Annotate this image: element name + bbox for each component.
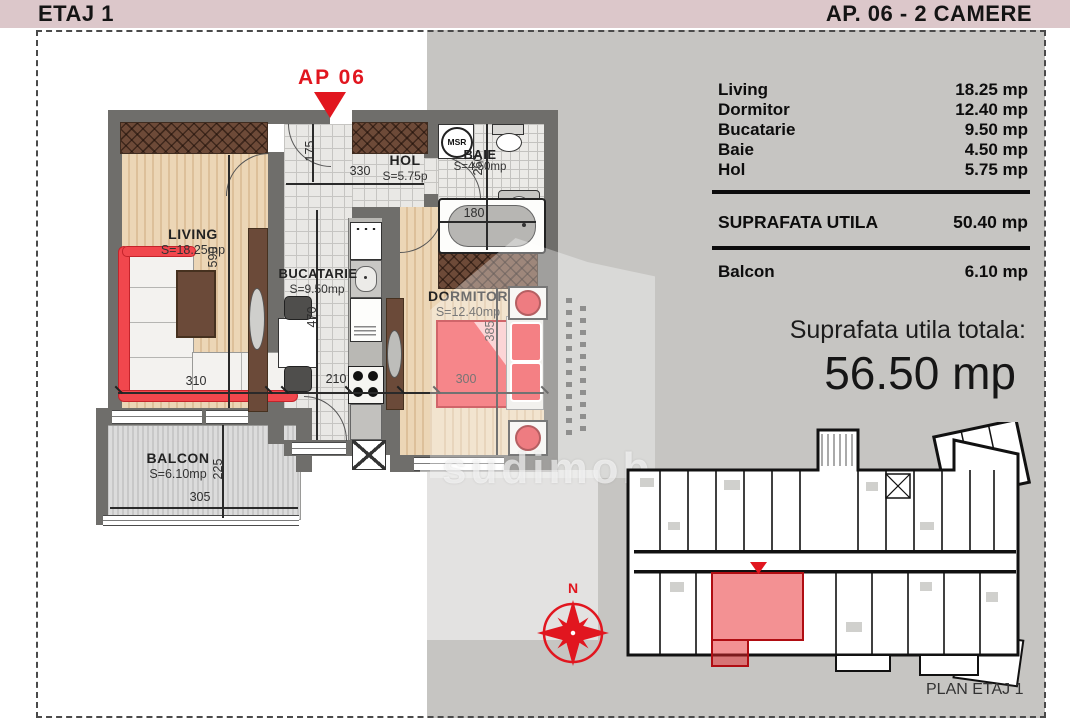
row-value: 18.25 mp [955, 80, 1028, 100]
total-label: SUPRAFATA UTILA [718, 212, 878, 233]
row-label: Living [718, 80, 768, 100]
wall [352, 207, 382, 218]
dim-living-width: 310 [176, 374, 216, 388]
total-area-value: 56.50 mp [700, 346, 1016, 400]
balcony-label: BALCON [140, 450, 216, 466]
row-label: Bucatarie [718, 120, 795, 140]
dim-kitchen-height: 470 [305, 299, 319, 335]
row-label: Hol [718, 160, 745, 180]
row-value: 5.75 mp [965, 160, 1028, 180]
dimension-line [440, 221, 536, 223]
dimension-line [118, 392, 544, 394]
tv-screen [249, 288, 265, 350]
compass-rose-icon [533, 596, 613, 670]
overview-caption: PLAN ETAJ 1 [926, 681, 1032, 699]
apartment-marker-arrow-icon [314, 92, 346, 118]
floor-title: ETAJ 1 [38, 1, 114, 27]
structural-column [352, 440, 386, 470]
kitchen-window [292, 442, 346, 455]
kitchen-label: BUCATARIE [274, 266, 362, 281]
concrete-wall [438, 250, 538, 289]
living-label: LIVING [158, 226, 228, 242]
row-value: 9.50 mp [965, 120, 1028, 140]
chair [284, 366, 312, 392]
balcony-row: Balcon 6.10 mp [712, 262, 1030, 282]
total-value: 50.40 mp [953, 212, 1028, 233]
sofa-frame [118, 246, 130, 400]
apartment-title: AP. 06 - 2 CAMERE [640, 1, 1032, 27]
balcony-label: Balcon [718, 262, 775, 282]
bed-mattress [436, 320, 510, 408]
wardrobe-mirror [387, 330, 402, 378]
bedroom-window [414, 457, 504, 471]
bathtub [438, 198, 546, 254]
compass-north-label: N [533, 580, 613, 596]
table-divider [712, 190, 1030, 194]
total-row: SUPRAFATA UTILA 50.40 mp [712, 212, 1030, 232]
table-row: Hol 5.75 mp [712, 160, 1030, 180]
bedroom-area: S=12.40mp [428, 305, 508, 319]
nightstand [508, 420, 548, 456]
pillow [510, 362, 542, 402]
appliance-dots [354, 226, 378, 232]
balcony-railing [103, 515, 299, 526]
concrete-wall [352, 122, 428, 154]
concrete-wall [120, 122, 268, 154]
dim-hall-height: 175 [303, 133, 317, 169]
bath-label: BAIE [452, 147, 508, 162]
bedroom-label: DORMITOR [418, 288, 518, 304]
dim-balcony-width: 305 [180, 490, 220, 504]
wall [424, 194, 438, 207]
highlighted-apartment [712, 573, 803, 640]
row-label: Dormitor [718, 100, 790, 120]
row-value: 12.40 mp [955, 100, 1028, 120]
table-row: Baie 4.50 mp [712, 140, 1030, 160]
dim-hall-width: 330 [340, 164, 380, 178]
balcony-area: S=6.10mp [144, 467, 212, 481]
dishwasher [350, 222, 382, 260]
dim-bedroom-width: 300 [446, 372, 486, 386]
row-value: 4.50 mp [965, 140, 1028, 160]
living-window [112, 410, 202, 424]
table-row: Living 18.25 mp [712, 80, 1030, 100]
dim-kitchen-width: 210 [316, 372, 356, 386]
floorplan-sheet: ETAJ 1 AP. 06 - 2 CAMERE [0, 0, 1070, 720]
table-divider [712, 246, 1030, 250]
kitchen-area: S=9.50mp [282, 282, 352, 296]
building-overview-plan [620, 422, 1034, 690]
total-area-title: Suprafata utila totala: [700, 316, 1026, 345]
table-row: Bucatarie 9.50 mp [712, 120, 1030, 140]
coffee-table [176, 270, 216, 338]
bath-area: S=4.50mp [446, 161, 514, 173]
dimension-line [486, 124, 488, 250]
table-row: Dormitor 12.40 mp [712, 100, 1030, 120]
kitchen-cabinet [350, 404, 382, 440]
dimension-line [110, 507, 298, 509]
balcony-door [206, 410, 248, 424]
header-band: ETAJ 1 AP. 06 - 2 CAMERE [0, 0, 1070, 28]
hall-area: S=5.75p [376, 169, 434, 183]
living-area: S=18.25mp [150, 243, 236, 257]
hall-label: HOL [382, 152, 428, 168]
dim-bathtub-length: 180 [456, 206, 492, 220]
pillow [510, 322, 542, 362]
highlighted-balcony [712, 640, 748, 666]
dimension-line [286, 183, 424, 185]
row-label: Baie [718, 140, 754, 160]
apartment-marker-label: AP 06 [296, 66, 368, 90]
fridge [350, 298, 382, 342]
wall [96, 425, 108, 525]
balcony-value: 6.10 mp [965, 262, 1028, 282]
dimension-line [228, 155, 230, 408]
